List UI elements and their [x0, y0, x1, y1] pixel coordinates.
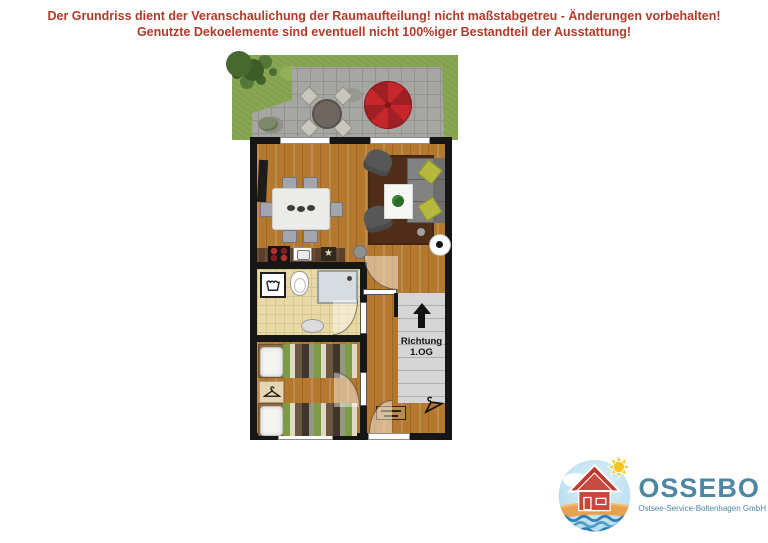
- coffee-table-icon: [384, 184, 413, 219]
- kitchen-sink-icon: [293, 247, 312, 261]
- dining-chair-icon: [303, 230, 318, 243]
- patio-table-icon: [312, 99, 342, 129]
- up-arrow-icon: [418, 314, 425, 328]
- flyer-page: Der Grundriss dient der Veranschaulichun…: [0, 0, 768, 543]
- garden-area: [232, 55, 458, 140]
- wall-hall-left: [360, 334, 367, 372]
- wall-bath-bedroom: [257, 335, 360, 342]
- wardrobe-icon: [259, 381, 284, 403]
- bath-sink-icon: [301, 319, 324, 333]
- terrace-door-window: [370, 137, 430, 144]
- up-arrow-icon: [413, 303, 431, 314]
- building-outline: ★: [250, 137, 452, 440]
- bush-icon: [258, 117, 278, 131]
- wall-kitchen-bath: [257, 262, 367, 269]
- disclaimer-text: Der Grundriss dient der Veranschaulichun…: [0, 8, 768, 41]
- dining-chair-icon: [282, 230, 297, 243]
- logo-emblem-icon: [556, 448, 636, 540]
- wall-hall-left: [360, 406, 367, 433]
- stairs-direction-label: Richtung: [398, 336, 445, 347]
- bathroom: [257, 269, 360, 335]
- bed-pillow: [260, 406, 283, 436]
- stove-icon: [268, 246, 290, 262]
- parasol-icon: [364, 81, 412, 129]
- floor-plan: ★: [232, 55, 458, 440]
- stairs-floor-label: 1.OG: [398, 347, 445, 358]
- logo-wordmark: OSSEBO: [638, 475, 766, 502]
- logo-tagline: Ostsee-Service-Boltenhagen GmbH: [638, 504, 766, 513]
- floor-lamp-icon: [429, 234, 451, 256]
- entry-door-opening: [368, 433, 410, 440]
- washing-machine-icon: [260, 272, 286, 298]
- plate-icon: [297, 206, 305, 212]
- dining-chair-icon: [330, 202, 343, 217]
- hanger-icon: [263, 386, 281, 399]
- bed-pillow: [260, 347, 283, 377]
- hallway-door-swing: [364, 256, 398, 290]
- plate-icon: [287, 205, 295, 211]
- staircase: Richtung 1.OG: [398, 293, 445, 403]
- plant-icon: [392, 195, 404, 207]
- terrace-door-window: [280, 137, 330, 144]
- company-logo: OSSEBO Ostsee-Service-Boltenhagen GmbH: [556, 448, 766, 540]
- laundry-tub-glyph: [264, 278, 282, 292]
- toilet-icon: [290, 271, 309, 296]
- decor-dot-icon: [417, 228, 425, 236]
- bathroom-door-leaf: [360, 302, 367, 334]
- entry-door-swing: [369, 400, 392, 433]
- disclaimer-line-2: Genutzte Dekoelemente sind eventuell nic…: [0, 24, 768, 40]
- bed-icon: [258, 403, 357, 436]
- bedroom-door-leaf: [360, 372, 367, 406]
- bathroom-door-swing: [333, 300, 358, 335]
- tv-sideboard-icon: [257, 160, 268, 202]
- bed-blanket: [283, 344, 357, 378]
- hallway-door-leaf: [363, 289, 397, 295]
- bed-blanket: [283, 403, 357, 436]
- kitchen-decor-icon: ★: [321, 247, 336, 261]
- plate-icon: [307, 205, 315, 211]
- dining-table-icon: [272, 188, 330, 230]
- tree-icon: [226, 51, 252, 77]
- disclaimer-line-1: Der Grundriss dient der Veranschaulichun…: [0, 8, 768, 24]
- shower-icon: [317, 270, 358, 304]
- sofa-pillow-icon: [417, 159, 442, 184]
